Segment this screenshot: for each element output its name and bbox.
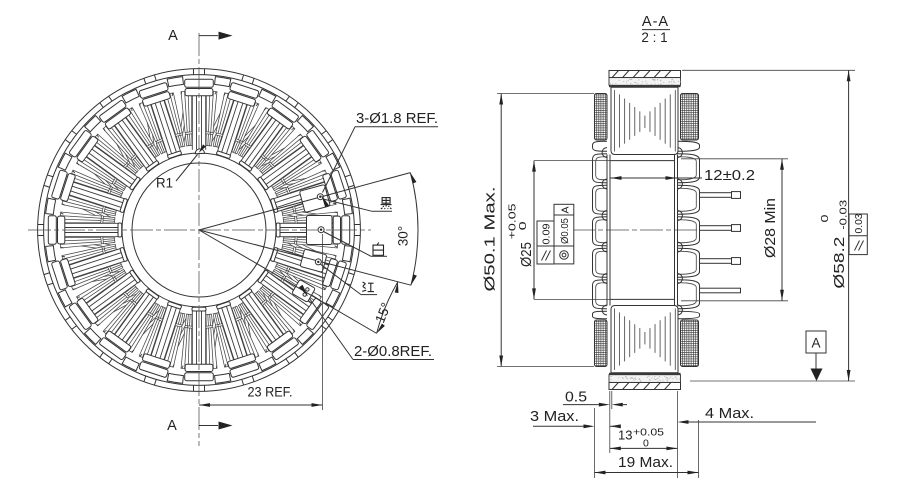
- svg-text:Ø58.2: Ø58.2: [831, 237, 848, 289]
- svg-text:3-Ø1.8 REF.: 3-Ø1.8 REF.: [356, 111, 438, 127]
- svg-text:Ø0.05: Ø0.05: [559, 218, 571, 244]
- svg-text:2 : 1: 2 : 1: [641, 30, 667, 45]
- svg-text:3 Max.: 3 Max.: [530, 409, 579, 425]
- svg-text:A: A: [167, 418, 177, 434]
- svg-text:Ø28 Min: Ø28 Min: [762, 198, 779, 258]
- svg-text:30°: 30°: [395, 226, 410, 247]
- svg-text:0.03: 0.03: [853, 213, 865, 233]
- svg-text:12±0.2: 12±0.2: [704, 168, 755, 184]
- svg-text:0: 0: [517, 221, 529, 230]
- svg-text:A-A: A-A: [642, 14, 669, 30]
- svg-text:Ø50.1 Max.: Ø50.1 Max.: [482, 187, 499, 292]
- svg-text:0.09: 0.09: [541, 223, 553, 244]
- svg-text:0.5: 0.5: [565, 390, 587, 406]
- svg-text:2-Ø0.8REF.: 2-Ø0.8REF.: [354, 344, 432, 360]
- svg-text:A: A: [811, 336, 820, 351]
- svg-text:19 Max.: 19 Max.: [618, 455, 673, 471]
- svg-text:4 Max.: 4 Max.: [705, 406, 754, 422]
- svg-text:0: 0: [819, 214, 831, 222]
- svg-text:A: A: [168, 28, 178, 44]
- svg-text:13: 13: [618, 428, 632, 443]
- svg-text:R1: R1: [156, 175, 173, 191]
- svg-text:0: 0: [643, 438, 649, 450]
- svg-text:-0.03: -0.03: [838, 200, 850, 230]
- svg-text:A: A: [560, 206, 572, 213]
- svg-text:23 REF.: 23 REF.: [248, 385, 293, 400]
- svg-text:Ø25: Ø25: [518, 242, 535, 267]
